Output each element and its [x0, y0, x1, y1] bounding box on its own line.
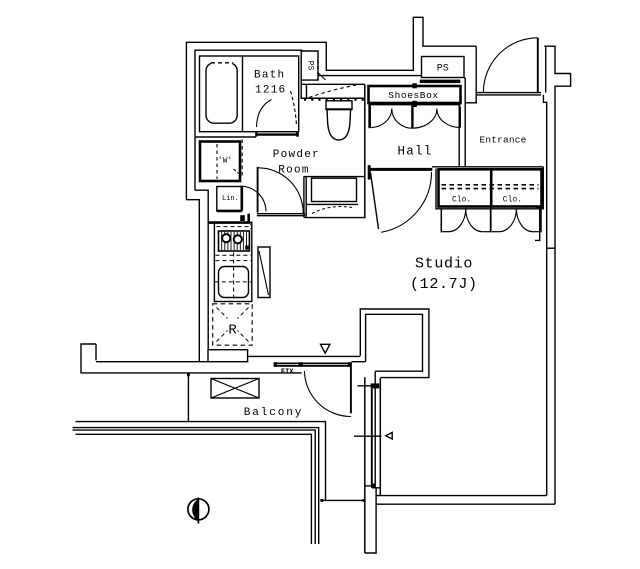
svg-text:Room: Room — [278, 164, 309, 176]
svg-text:PS: PS — [306, 61, 315, 71]
svg-text:FIX: FIX — [281, 369, 294, 377]
svg-text:R: R — [228, 323, 237, 339]
svg-text:'W': 'W' — [218, 156, 232, 165]
svg-text:Bath: Bath — [254, 69, 285, 81]
svg-text:Balcony: Balcony — [244, 407, 304, 419]
svg-text:Clo.: Clo. — [503, 195, 522, 204]
svg-text:Studio: Studio — [415, 256, 473, 273]
svg-text:PS: PS — [437, 63, 449, 74]
svg-text:1216: 1216 — [255, 84, 286, 96]
svg-text:Hall: Hall — [398, 145, 433, 159]
svg-text:(12.7J): (12.7J) — [410, 276, 478, 293]
svg-text:Lin.: Lin. — [222, 195, 239, 203]
svg-text:Clo.: Clo. — [452, 195, 471, 204]
svg-text:ShoesBox: ShoesBox — [388, 90, 438, 101]
svg-text:Entrance: Entrance — [480, 134, 527, 145]
svg-text:Powder: Powder — [273, 149, 320, 161]
